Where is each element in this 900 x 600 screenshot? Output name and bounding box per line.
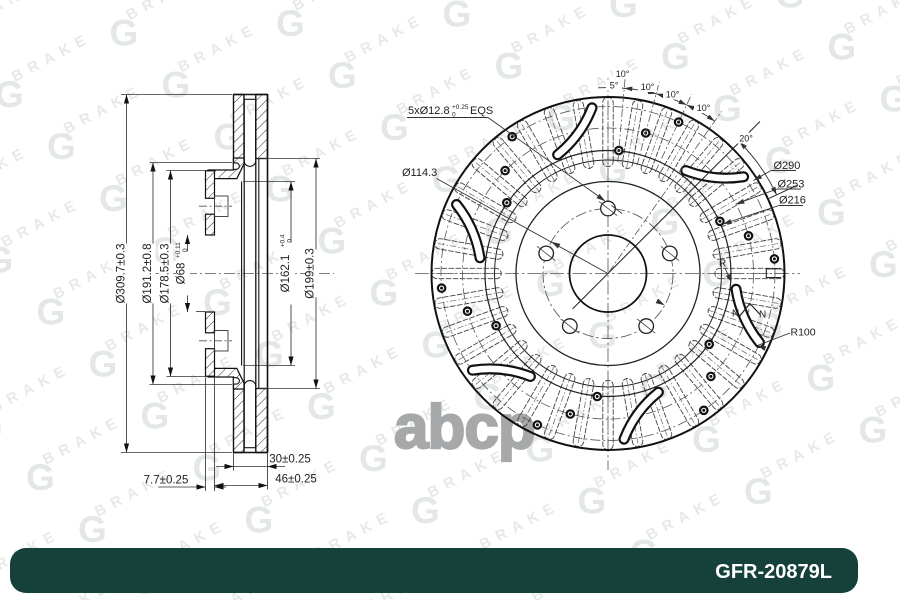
svg-text:R100: R100	[791, 327, 816, 339]
svg-text:R: R	[719, 259, 726, 270]
svg-text:abcp: abcp	[394, 393, 535, 462]
svg-text:G: G	[443, 0, 472, 35]
svg-text:10°: 10°	[641, 82, 655, 92]
svg-text:46±0.25: 46±0.25	[275, 474, 317, 486]
svg-text:+0.11: +0.11	[175, 242, 182, 258]
svg-text:+0.4: +0.4	[279, 234, 286, 247]
svg-text:0: 0	[182, 248, 189, 252]
svg-text:Ø309.7±0.3: Ø309.7±0.3	[116, 243, 128, 303]
svg-text:Ø216: Ø216	[779, 195, 806, 207]
svg-text:Ø114.3: Ø114.3	[402, 167, 437, 179]
svg-text:+0.25: +0.25	[452, 104, 469, 111]
svg-text:G: G	[880, 79, 900, 120]
svg-text:10°: 10°	[666, 90, 680, 100]
svg-text:G: G	[776, 0, 805, 16]
svg-text:Ø191.2±0.8: Ø191.2±0.8	[142, 243, 154, 303]
svg-text:10°: 10°	[697, 103, 711, 113]
svg-text:10°: 10°	[616, 69, 630, 79]
svg-text:EQS: EQS	[470, 105, 493, 117]
svg-text:5xØ12.8: 5xØ12.8	[408, 105, 450, 117]
svg-text:7.7±0.25: 7.7±0.25	[144, 475, 189, 487]
svg-text:0: 0	[286, 239, 293, 243]
svg-text:5°: 5°	[610, 81, 619, 91]
svg-text:Ø68: Ø68	[176, 263, 188, 285]
svg-text:G: G	[609, 0, 638, 25]
svg-text:N: N	[732, 309, 739, 320]
svg-text:G: G	[58, 0, 87, 2]
svg-text:30±0.25: 30±0.25	[269, 454, 311, 466]
svg-text:Ø178.5±0.3: Ø178.5±0.3	[159, 243, 171, 303]
svg-text:20°: 20°	[739, 134, 753, 144]
svg-text:Ø162.1: Ø162.1	[280, 255, 292, 293]
svg-text:GFR-20879L: GFR-20879L	[715, 561, 832, 583]
svg-text:Ø199±0.3: Ø199±0.3	[305, 248, 317, 298]
